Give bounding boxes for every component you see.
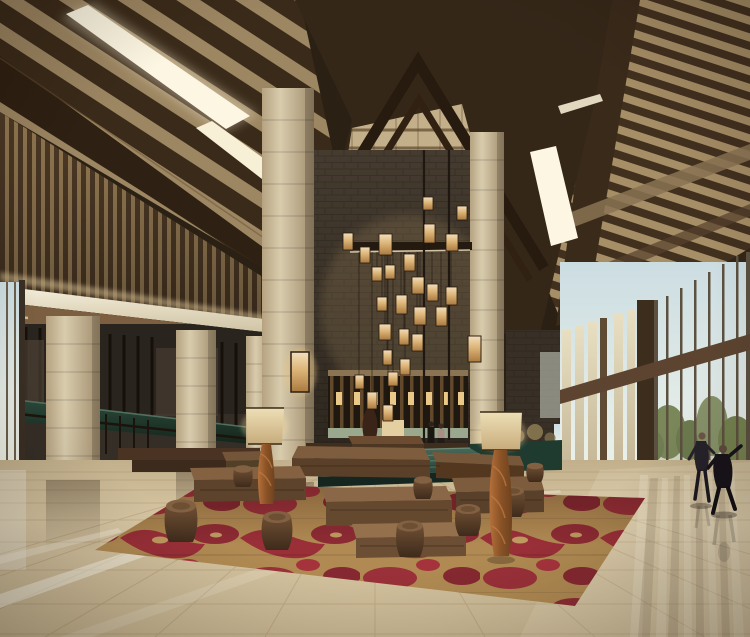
scene-canvas: [0, 0, 750, 637]
vignette: [0, 0, 750, 637]
lobby-rendering: [0, 0, 750, 637]
